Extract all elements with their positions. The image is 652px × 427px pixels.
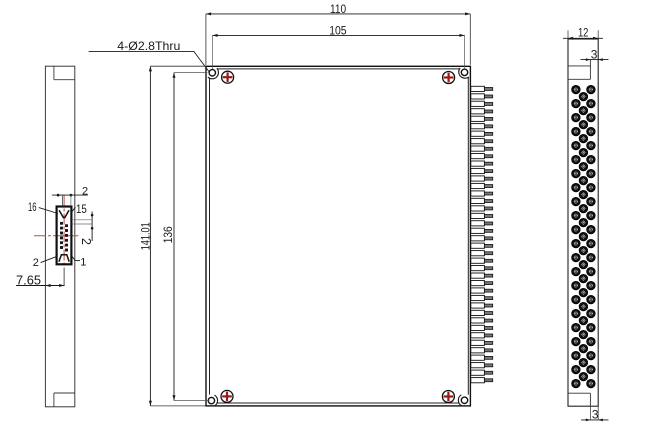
svg-text:12: 12 <box>578 26 589 40</box>
svg-text:105: 105 <box>329 24 347 38</box>
svg-text:3: 3 <box>591 48 598 62</box>
svg-text:1: 1 <box>80 257 86 269</box>
svg-text:16: 16 <box>28 202 37 214</box>
svg-text:15: 15 <box>76 204 87 216</box>
svg-text:2: 2 <box>33 257 39 269</box>
svg-text:110: 110 <box>330 2 346 16</box>
svg-text:3: 3 <box>592 408 599 422</box>
svg-text:2: 2 <box>82 185 88 197</box>
svg-text:141.01: 141.01 <box>139 222 153 250</box>
svg-text:2: 2 <box>79 238 93 245</box>
svg-text:136: 136 <box>161 226 175 243</box>
